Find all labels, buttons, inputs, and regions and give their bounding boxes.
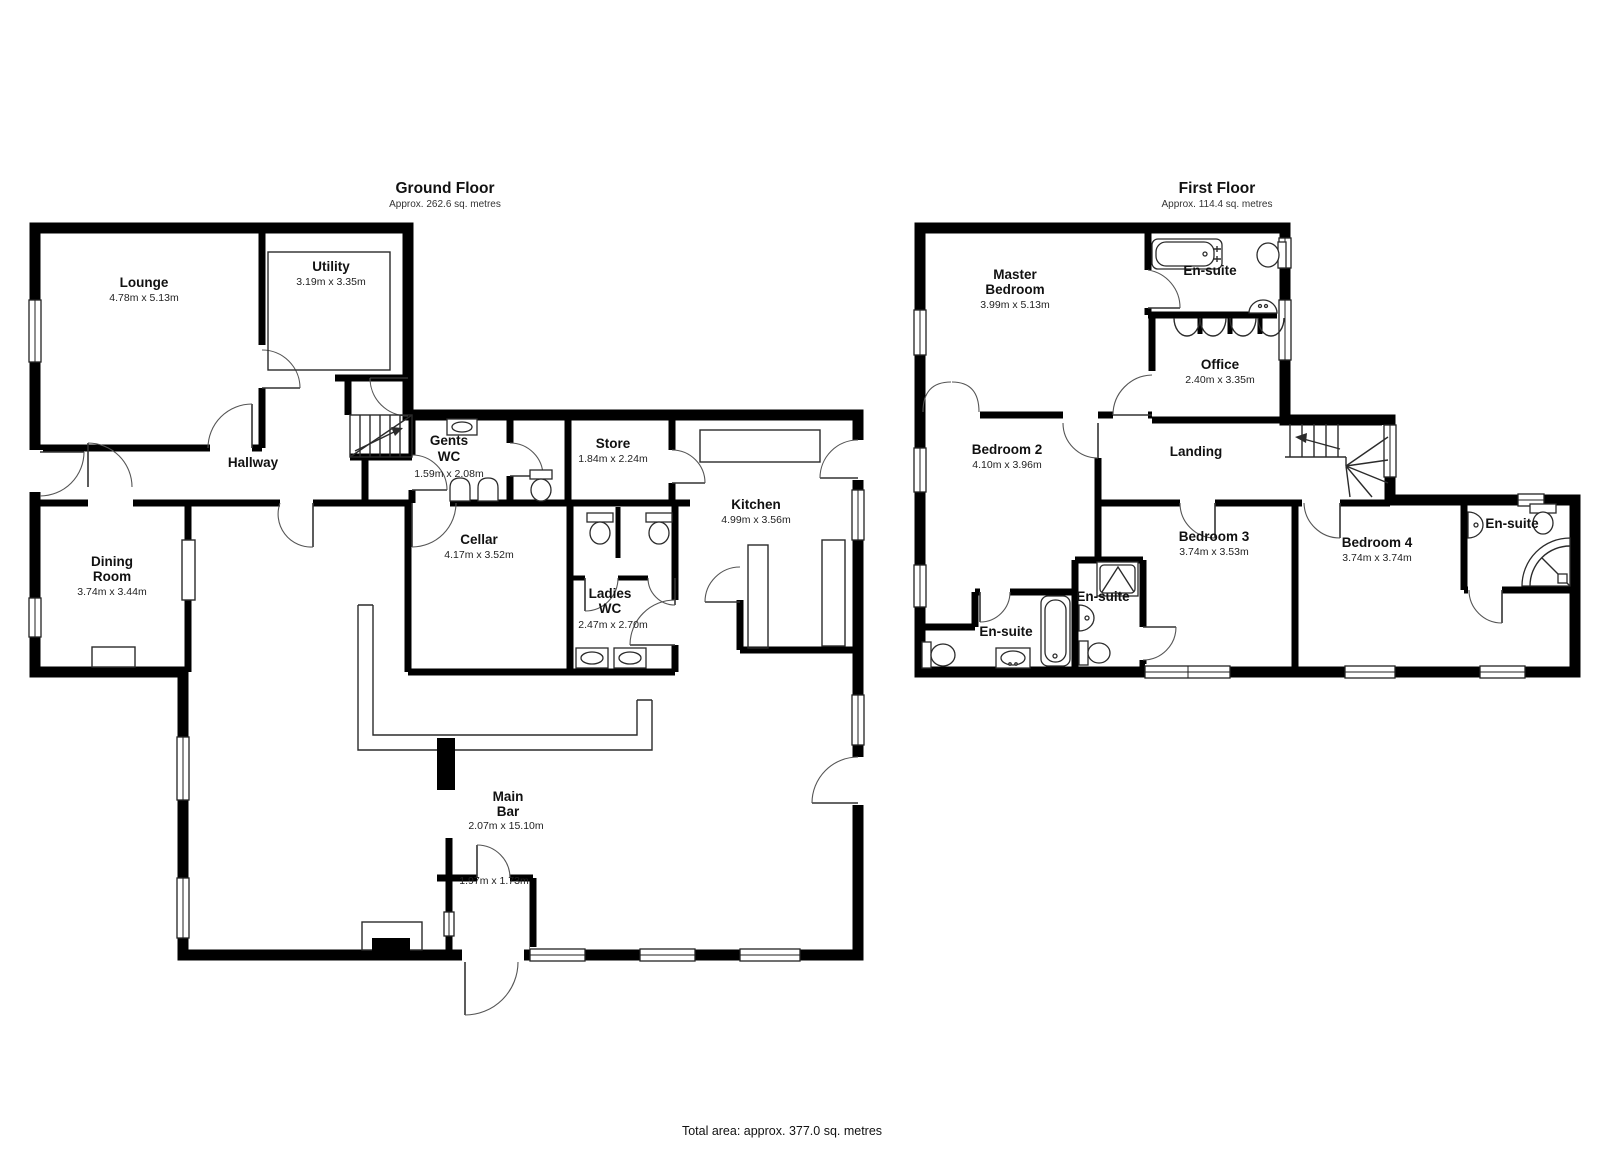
lounge-dims: 4.78m x 5.13m xyxy=(109,292,179,304)
window xyxy=(850,695,866,745)
main-bar-label2: Bar xyxy=(497,804,520,819)
window xyxy=(1382,425,1398,477)
office-dims: 2.40m x 3.35m xyxy=(1185,374,1255,386)
porch-dims: 1.97m x 1.73m xyxy=(459,875,529,887)
dining-room-label1: Dining xyxy=(91,554,133,569)
store-dims: 1.84m x 2.24m xyxy=(578,453,648,465)
window xyxy=(175,878,191,938)
ensuite-bed4-label: En-suite xyxy=(1485,516,1539,531)
urinal-icon xyxy=(450,478,470,501)
main-bar-label1: Main xyxy=(493,789,524,804)
bedroom3-dims: 3.74m x 3.53m xyxy=(1179,546,1249,558)
door-arc xyxy=(705,567,740,602)
window xyxy=(850,490,866,540)
ladies-wc-label1: Ladies xyxy=(589,586,632,601)
toilet-icon xyxy=(530,470,552,501)
toilet-icon xyxy=(1257,242,1286,268)
door-arc xyxy=(1304,503,1340,538)
door-arc xyxy=(412,503,456,547)
hallway-door-gap xyxy=(27,450,43,492)
door-arc xyxy=(1469,590,1502,623)
window xyxy=(740,947,800,963)
staircase-first xyxy=(1285,424,1388,497)
ground-interior-walls xyxy=(35,228,858,955)
corner-shower-icon xyxy=(1522,538,1570,586)
kitchen-door-gap xyxy=(851,440,865,480)
window xyxy=(912,448,928,492)
toilet-icon xyxy=(646,513,672,544)
bedroom4-dims: 3.74m x 3.74m xyxy=(1342,552,1412,564)
hallway-label: Hallway xyxy=(228,455,279,470)
master-bedroom-dims: 3.99m x 5.13m xyxy=(980,299,1050,311)
door-arc xyxy=(465,962,518,1015)
dining-table xyxy=(92,647,135,667)
ladies-wc-dims: 2.47m x 2.70m xyxy=(578,619,648,631)
serving-hatch xyxy=(182,540,195,600)
window xyxy=(27,300,43,362)
wardrobe-doors xyxy=(1174,318,1284,336)
sink-icon xyxy=(576,648,608,668)
door-arc xyxy=(40,452,84,496)
dining-room-dims: 3.74m x 3.44m xyxy=(77,586,147,598)
floorplan-page: Ground Floor Approx. 262.6 sq. metres Lo… xyxy=(0,0,1600,1163)
toilet-icon xyxy=(587,513,613,544)
gents-wc-label2: WC xyxy=(438,449,461,464)
landing-label: Landing xyxy=(1170,444,1223,459)
cellar-dims: 4.17m x 3.52m xyxy=(444,549,514,561)
ground-floor-plan: Ground Floor Approx. 262.6 sq. metres Lo… xyxy=(27,180,866,1015)
master-bedroom-label1: Master xyxy=(993,267,1037,282)
sink-icon xyxy=(614,648,646,668)
dining-room-label2: Room xyxy=(93,569,131,584)
sink-icon xyxy=(1079,605,1094,631)
window xyxy=(640,947,695,963)
ground-floor-title: Ground Floor xyxy=(395,180,494,197)
total-area-label: Total area: approx. 377.0 sq. metres xyxy=(682,1124,882,1138)
bedroom2-dims: 4.10m x 3.96m xyxy=(972,459,1042,471)
door-arc xyxy=(1143,627,1176,660)
utility-dims: 3.19m x 3.35m xyxy=(296,276,366,288)
toilet-icon xyxy=(922,642,955,668)
ladies-wc-label2: WC xyxy=(599,601,622,616)
first-floor-subtitle: Approx. 114.4 sq. metres xyxy=(1162,199,1273,210)
window xyxy=(443,912,455,936)
main-bar-dims: 2.07m x 15.10m xyxy=(468,820,544,832)
window xyxy=(912,565,928,607)
door-arc xyxy=(1148,270,1180,308)
ensuite-bed2-label: En-suite xyxy=(979,624,1033,639)
door-arc xyxy=(1113,375,1152,415)
bar-counter xyxy=(358,605,652,790)
gents-wc-dims: 1.59m x 2.08m xyxy=(414,468,484,480)
sink-icon xyxy=(1468,512,1483,538)
bedroom4-label: Bedroom 4 xyxy=(1342,535,1413,550)
toilet-icon xyxy=(1079,641,1110,665)
door-arc xyxy=(477,845,510,878)
cellar-label: Cellar xyxy=(460,532,498,547)
door-arc xyxy=(370,378,408,416)
door-arc xyxy=(1063,423,1098,458)
window xyxy=(1480,664,1525,680)
window xyxy=(912,310,928,355)
window xyxy=(175,737,191,800)
window xyxy=(1345,664,1395,680)
door-arc xyxy=(648,578,675,605)
window xyxy=(1277,300,1293,360)
ensuite-bed3-label: En-suite xyxy=(1076,589,1130,604)
door-arc xyxy=(980,592,1010,622)
bedroom3-label: Bedroom 3 xyxy=(1179,529,1250,544)
bedroom2-label: Bedroom 2 xyxy=(972,442,1043,457)
lounge-label: Lounge xyxy=(120,275,169,290)
urinal-icon xyxy=(478,478,498,501)
store-label: Store xyxy=(596,436,631,451)
porch-door-gap xyxy=(462,948,524,962)
ground-floor-subtitle: Approx. 262.6 sq. metres xyxy=(389,199,501,210)
bench-fixture xyxy=(362,922,422,951)
window xyxy=(27,598,43,637)
gents-wc-label1: Gents xyxy=(430,433,468,448)
first-floor-plan: First Floor Approx. 114.4 sq. metres Mas… xyxy=(912,180,1575,680)
double-door-arc xyxy=(923,382,979,412)
kitchen-dims: 4.99m x 3.56m xyxy=(721,514,791,526)
first-floor-title: First Floor xyxy=(1179,180,1256,197)
sink-icon xyxy=(1249,300,1277,313)
door-arc xyxy=(208,404,252,448)
sink-icon xyxy=(996,648,1030,668)
window xyxy=(1145,664,1230,680)
bath-icon xyxy=(1041,596,1070,666)
window xyxy=(530,947,585,963)
door-arc xyxy=(278,503,313,547)
staircase-ground xyxy=(350,415,412,457)
utility-label: Utility xyxy=(312,259,350,274)
floorplan-svg: Ground Floor Approx. 262.6 sq. metres Lo… xyxy=(0,0,1600,1163)
master-bedroom-label2: Bedroom xyxy=(985,282,1044,297)
kitchen-label: Kitchen xyxy=(731,497,781,512)
bar-door-gap xyxy=(851,757,865,805)
office-label: Office xyxy=(1201,357,1240,372)
ensuite-master-label: En-suite xyxy=(1183,263,1237,278)
